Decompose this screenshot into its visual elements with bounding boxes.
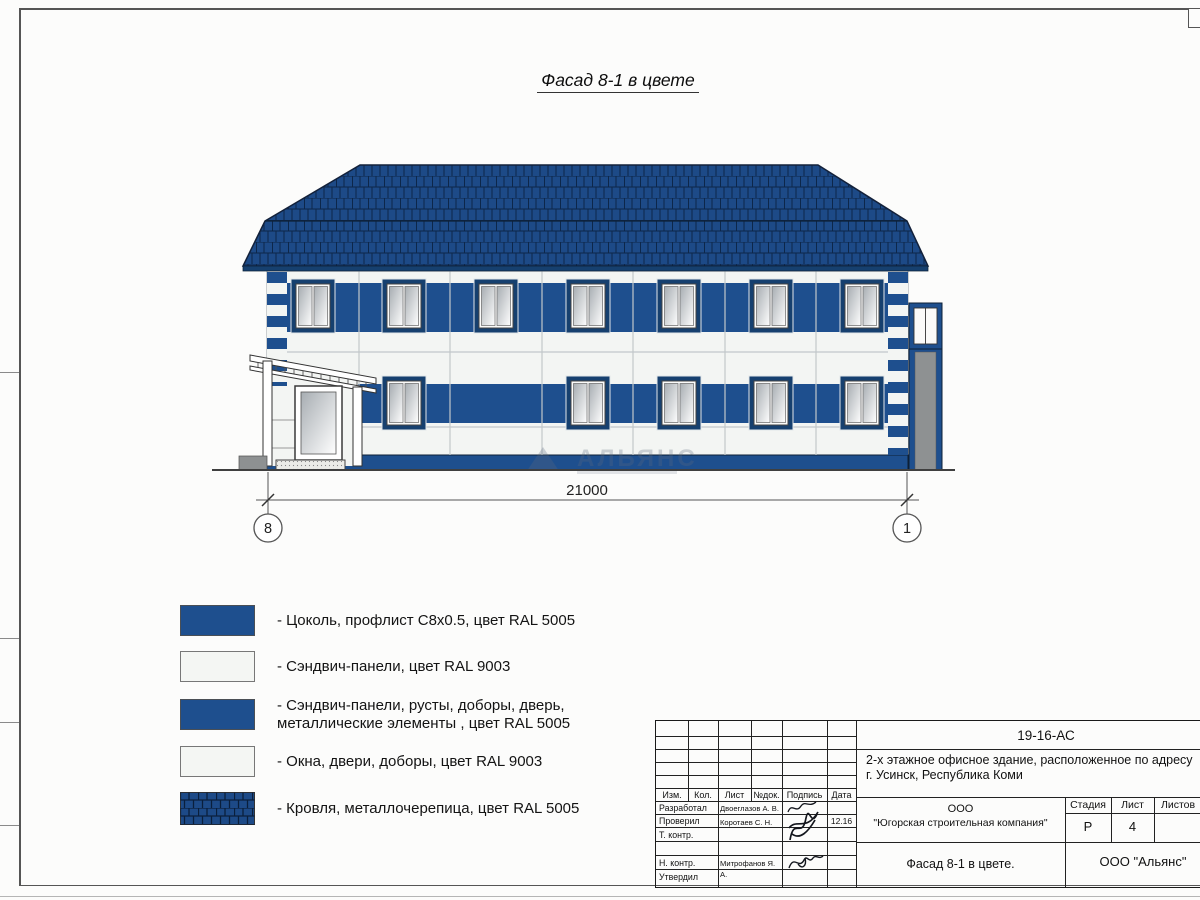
legend-item: - Сэндвич-панели, цвет RAL 9003 bbox=[180, 651, 510, 682]
col-kol: Кол. bbox=[688, 789, 718, 801]
legend-swatch-blue-elements bbox=[180, 699, 255, 730]
svg-text:1: 1 bbox=[903, 521, 911, 537]
col-list: Лист bbox=[718, 789, 751, 801]
porch-post-right bbox=[353, 387, 362, 466]
window bbox=[840, 279, 884, 333]
name-razrabotal: Двоеглазов А. В. bbox=[720, 803, 781, 814]
col-ndok: №док. bbox=[751, 789, 782, 801]
window bbox=[657, 279, 701, 333]
signature-nkontr bbox=[789, 856, 823, 868]
legend-label: - Кровля, металлочерепица, цвет RAL 5005 bbox=[277, 800, 579, 818]
sheet-value: 4 bbox=[1111, 819, 1154, 835]
window bbox=[382, 279, 426, 333]
company-line1: ООО bbox=[856, 803, 1065, 816]
stage-label: Стадия bbox=[1065, 799, 1111, 812]
margin-tick bbox=[0, 638, 19, 639]
axis-marker-8: 8 bbox=[254, 514, 282, 542]
window bbox=[840, 376, 884, 430]
role-razrabotal: Разработал bbox=[659, 802, 717, 814]
role-tkontr: Т. контр. bbox=[659, 829, 717, 841]
company-line2: "Югорская строительная компания" bbox=[856, 817, 1065, 830]
legend-item: - Сэндвич-панели, русты, доборы, дверь, … bbox=[180, 697, 570, 732]
doc-code: 19-16-АС bbox=[856, 727, 1200, 745]
project-title-line2: г. Усинск, Республика Коми bbox=[866, 768, 1200, 783]
window bbox=[566, 376, 610, 430]
legend-swatch-windows bbox=[180, 746, 255, 777]
org-name: ООО "Альянс" bbox=[1065, 854, 1200, 870]
date-proveril: 12.16 bbox=[827, 816, 856, 827]
svg-text:8: 8 bbox=[264, 521, 272, 537]
role-nkontr: Н. контр. bbox=[659, 857, 717, 869]
window bbox=[749, 376, 793, 430]
legend-item: - Цоколь, профлист С8х0.5, цвет RAL 5005 bbox=[180, 605, 575, 636]
side-platform bbox=[239, 456, 267, 470]
window bbox=[657, 376, 701, 430]
page-edge bbox=[0, 896, 1200, 897]
legend-label: - Сэндвич-панели, цвет RAL 9003 bbox=[277, 658, 510, 676]
porch-post-left bbox=[263, 361, 272, 466]
window bbox=[566, 279, 610, 333]
col-izm: Изм. bbox=[656, 789, 688, 801]
project-title-line1: 2-х этажное офисное здание, расположенно… bbox=[866, 753, 1200, 768]
title-block: Изм. Кол. Лист №док. Подпись Дата Разраб… bbox=[655, 720, 1200, 888]
axis-marker-1: 1 bbox=[893, 514, 921, 542]
entrance-door bbox=[295, 386, 342, 460]
col-data: Дата bbox=[827, 789, 856, 801]
sheet-label: Лист bbox=[1111, 799, 1154, 812]
window bbox=[291, 279, 335, 333]
stage-value: Р bbox=[1065, 819, 1111, 835]
drawing-name: Фасад 8-1 в цвете. bbox=[856, 856, 1065, 872]
legend-label: - Окна, двери, доборы, цвет RAL 9003 bbox=[277, 753, 542, 771]
dimension-value: 21000 bbox=[566, 482, 608, 499]
side-structure bbox=[909, 303, 942, 470]
drawing-sheet: Фасад 8-1 в цвете bbox=[0, 0, 1200, 900]
window bbox=[382, 376, 426, 430]
signature-proveril bbox=[789, 812, 818, 840]
watermark-text: АЛЬЯНС bbox=[577, 445, 698, 472]
facade-drawing: АЛЬЯНС 21000 8 1 bbox=[0, 0, 1200, 575]
legend-label: - Цоколь, профлист С8х0.5, цвет RAL 5005 bbox=[277, 612, 575, 630]
legend-item: - Кровля, металлочерепица, цвет RAL 5005 bbox=[180, 792, 579, 825]
legend-swatch-plinth bbox=[180, 605, 255, 636]
legend-label: - Сэндвич-панели, русты, доборы, дверь, … bbox=[277, 697, 570, 732]
legend-item: - Окна, двери, доборы, цвет RAL 9003 bbox=[180, 746, 542, 777]
window bbox=[749, 279, 793, 333]
role-utverdil: Утвердил bbox=[659, 871, 717, 883]
window bbox=[474, 279, 518, 333]
margin-tick bbox=[0, 825, 19, 826]
role-proveril: Проверил bbox=[659, 815, 717, 827]
name-nkontr: Митрофанов Я. А. bbox=[720, 858, 781, 880]
eaves-fascia bbox=[243, 266, 928, 271]
legend-swatch-roof bbox=[180, 792, 255, 825]
signature-razrabotal bbox=[788, 802, 816, 812]
porch-step bbox=[276, 460, 345, 470]
legend-swatch-panels bbox=[180, 651, 255, 682]
sheets-label: Листов bbox=[1154, 799, 1200, 812]
quoins-right bbox=[888, 272, 908, 455]
signatures bbox=[782, 788, 827, 887]
roof bbox=[243, 165, 928, 271]
name-proveril: Коротаев С. Н. bbox=[720, 817, 781, 828]
margin-tick bbox=[0, 722, 19, 723]
